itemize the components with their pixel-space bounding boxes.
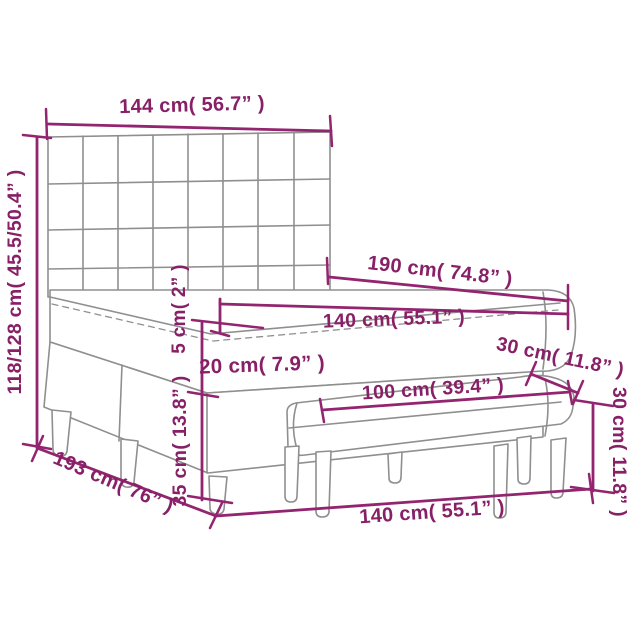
bed-dimension-diagram: 144 cm( 56.7” ) 118/128 cm( 45.5/50.4” )… bbox=[0, 0, 640, 640]
label-topper-thickness: 5 cm( 2” ) bbox=[169, 264, 190, 354]
label-bed-depth: 193 cm( 76” ) bbox=[50, 447, 177, 517]
label-total-height: 118/128 cm( 45.5/50.4” ) bbox=[4, 169, 26, 394]
dim-tick bbox=[327, 258, 328, 284]
label-headboard-width: 144 cm( 56.7” ) bbox=[119, 92, 265, 118]
bench-leg bbox=[285, 446, 299, 502]
dim-headboard-width-line bbox=[48, 124, 331, 131]
bed-leg bbox=[209, 476, 227, 514]
bed-drawing bbox=[44, 132, 575, 518]
label-mattress-thickness: 20 cm( 7.9” ) bbox=[199, 351, 326, 378]
label-base-width: 140 cm( 55.1” ) bbox=[359, 496, 506, 528]
diagram-page: 144 cm( 56.7” ) 118/128 cm( 45.5/50.4” )… bbox=[0, 0, 640, 640]
bench-leg bbox=[551, 438, 566, 498]
label-base-height: 35 cm( 13.8” ) bbox=[169, 375, 191, 506]
bench-leg bbox=[388, 452, 402, 483]
label-bed-length: 190 cm( 74.8” ) bbox=[366, 252, 513, 290]
dim-tick bbox=[46, 109, 47, 139]
label-bench-height: 30 cm( 11.8” ) bbox=[608, 387, 630, 517]
bench-leg bbox=[517, 436, 531, 484]
